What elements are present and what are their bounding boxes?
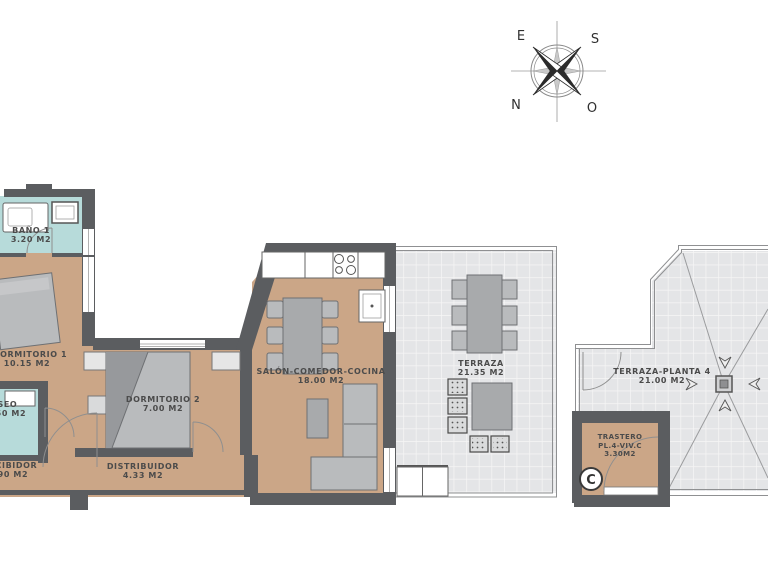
trastero-unit: PL.4-VIV.C bbox=[598, 442, 642, 450]
terraza-area: 21.35 M2 bbox=[458, 368, 504, 377]
sofa bbox=[343, 384, 377, 460]
coffee-table bbox=[307, 399, 328, 438]
distribuidor-area: 4.33 M2 bbox=[123, 471, 163, 480]
roof-drain bbox=[716, 376, 732, 392]
compass-n: N bbox=[511, 98, 521, 113]
distribuidor-label: DISTRIBUIDOR bbox=[107, 462, 179, 471]
dormitorio2-label: DORMITORIO 2 bbox=[126, 395, 200, 404]
terraza-planta4-area: 21.00 M2 bbox=[639, 376, 685, 385]
floor-plan: E S N O bbox=[0, 0, 768, 576]
sofa bbox=[311, 457, 377, 490]
dormitorio1-area: 10.15 M2 bbox=[4, 359, 50, 368]
dormitorio2-area: 7.00 M2 bbox=[143, 404, 183, 413]
compass-o: O bbox=[587, 101, 597, 116]
terraza-side-table bbox=[472, 383, 512, 430]
terraza-table-chairs bbox=[452, 275, 517, 353]
aseo-label: ASEO bbox=[0, 400, 17, 409]
compass-s: S bbox=[591, 32, 599, 47]
trastero-door-leaf bbox=[604, 487, 658, 495]
terraza-planta4-label: TERRAZA-PLANTA 4 bbox=[613, 367, 711, 376]
trastero-label: TRASTERO bbox=[598, 433, 643, 441]
trastero-area: 3.30M2 bbox=[604, 450, 636, 458]
dining-table-chairs bbox=[267, 298, 338, 374]
trastero-room: C bbox=[572, 411, 670, 507]
nightstand bbox=[212, 352, 240, 370]
unit-marker-letter: C bbox=[586, 473, 596, 488]
terraza-storage-unit bbox=[397, 465, 448, 496]
terraza-label: TERRAZA bbox=[458, 359, 504, 368]
recibidor-label: RECIBIDOR bbox=[0, 461, 37, 470]
compass-rose-icon: E S N O bbox=[511, 21, 606, 122]
salon-label: SALÓN-COMEDOR-COCINA bbox=[256, 365, 385, 376]
side-table bbox=[88, 396, 108, 414]
nightstand bbox=[84, 352, 106, 370]
salon-area: 18.00 M2 bbox=[298, 376, 344, 385]
aseo-area: 1.50 M2 bbox=[0, 409, 26, 418]
dormitorio1-label: DORMITORIO 1 bbox=[0, 350, 67, 359]
banio1-area: 3.20 M2 bbox=[11, 235, 51, 244]
dormitorio1-furniture bbox=[0, 273, 60, 350]
recibidor-area: 1.90 M2 bbox=[0, 470, 28, 479]
banio1-label: BAÑO 1 bbox=[12, 225, 50, 235]
compass-e: E bbox=[517, 29, 525, 44]
